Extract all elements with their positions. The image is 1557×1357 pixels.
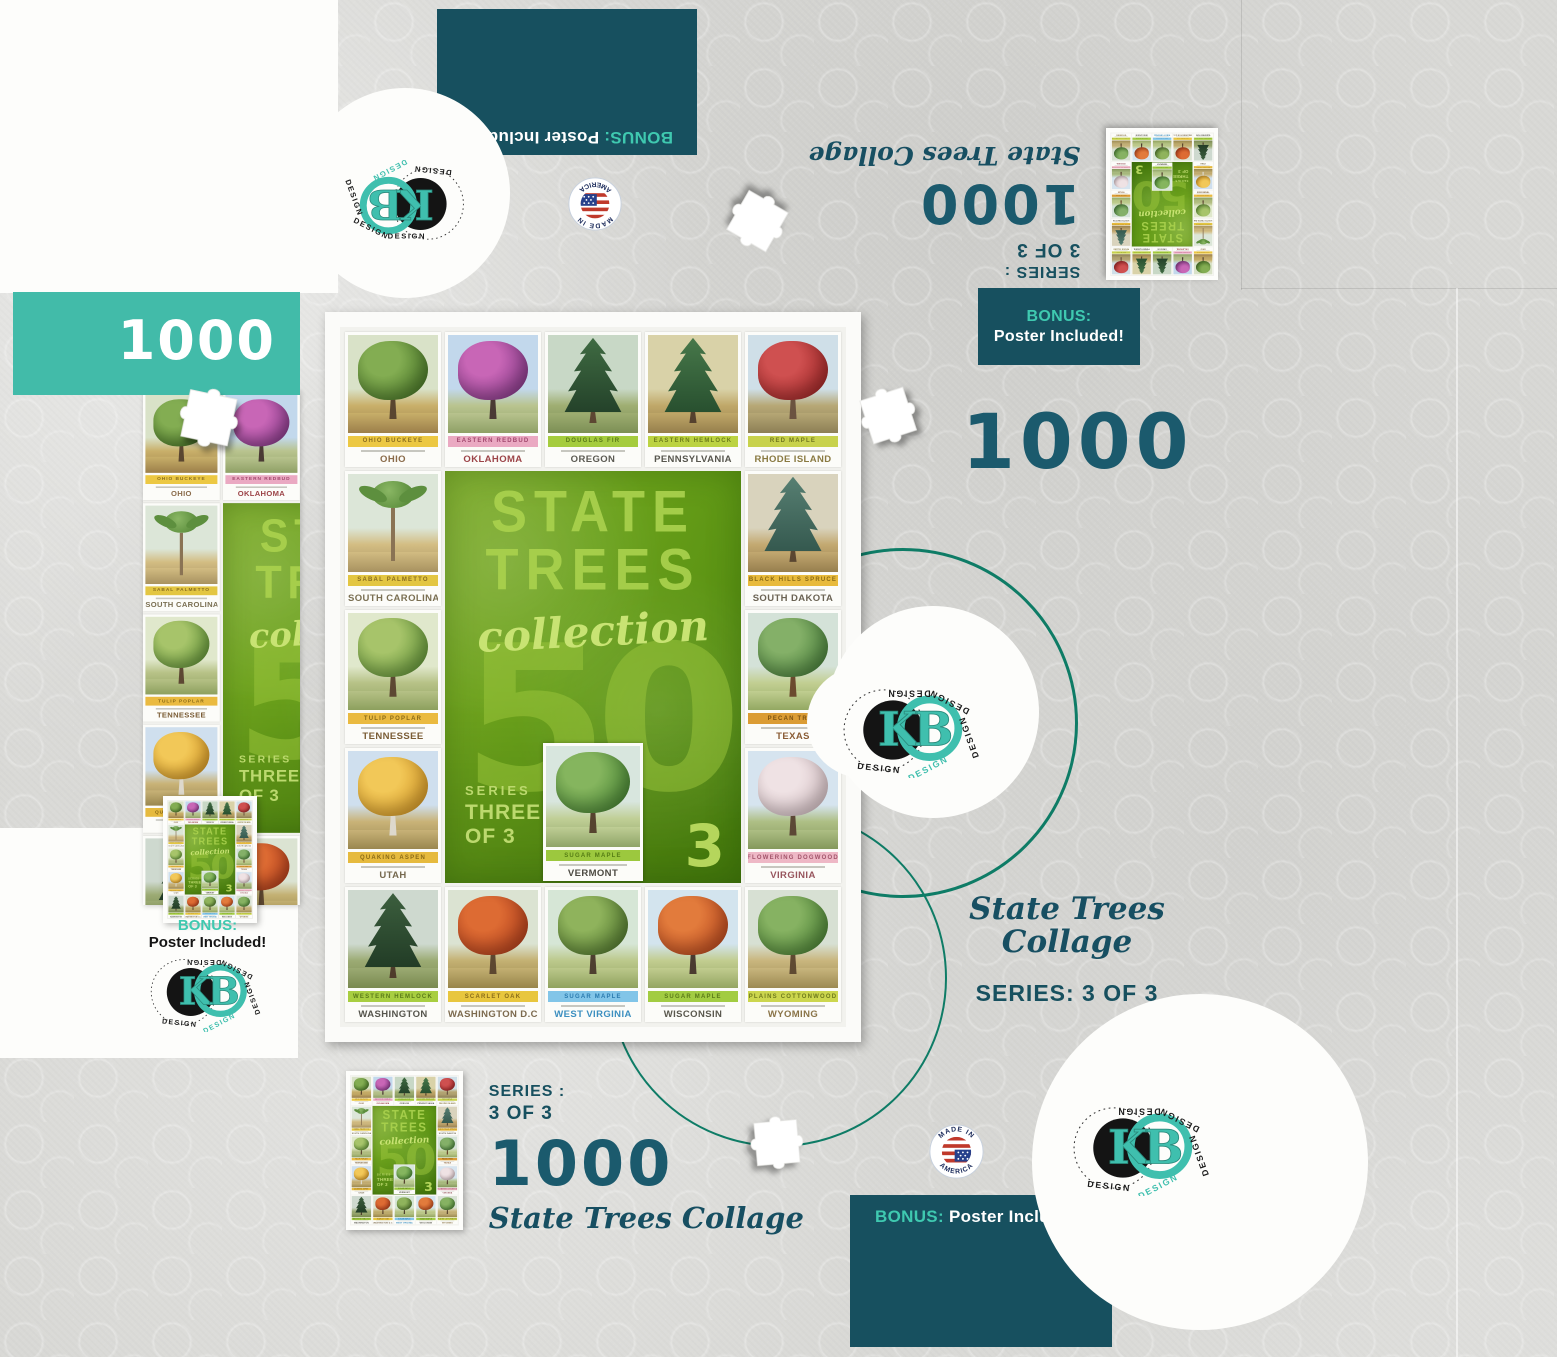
state-tree-card: Pecan TreeTEXAS [437, 1136, 458, 1165]
series-value: 3 OF 3 [1016, 238, 1080, 260]
species-band: Sugar Maple [546, 850, 640, 861]
state-tree-card: Ohio BuckeyeOHIO [351, 1076, 372, 1105]
state-name: WASHINGTON [352, 1222, 371, 1224]
state-name: TENNESSEE [145, 712, 217, 721]
kb-design-logo: KB DESIGN DESIGN DESIGN DESIGN DESIGN [147, 952, 267, 1032]
puzzle-artwork: Ohio BuckeyeOHIOEastern RedbudOKLAHOMADo… [1110, 133, 1214, 277]
state-name: OKLAHOMA [185, 822, 200, 824]
svg-text:KB: KB [179, 969, 239, 1014]
state-name: OHIO [352, 1102, 371, 1104]
tree-illustration [448, 890, 538, 988]
tree-illustration [1112, 140, 1130, 160]
state-name: PENNSYLVANIA [648, 454, 738, 465]
svg-text:DESIGN: DESIGN [162, 1018, 198, 1029]
state-name: VERMONT [202, 892, 218, 894]
tree-illustration [352, 1107, 371, 1128]
tree-illustration [373, 1196, 392, 1217]
state-tree-card: Ohio BuckeyeOHIO [168, 801, 184, 824]
tree-illustration [145, 728, 217, 806]
state-tree-card: Eastern RedbudOKLAHOMA [373, 1076, 394, 1105]
species-band: Flowering Dogwood [748, 852, 838, 863]
caption-line [761, 589, 826, 591]
state-name: OKLAHOMA [1173, 248, 1191, 250]
state-tree-card: Flowering DogwoodVIRGINIA [745, 748, 841, 883]
piece-count: 1000 [489, 1133, 674, 1195]
species-band: Eastern Redbud [373, 1098, 392, 1100]
state-name: RHODE ISLAND [438, 1102, 457, 1104]
tree-illustration [202, 871, 218, 888]
tree-illustration [1194, 169, 1212, 189]
state-tree-card: Douglas FirOREGON [1152, 247, 1172, 275]
state-tree-card: Black Hills SpruceSOUTH DAKOTA [437, 1106, 458, 1135]
species-band: Black Hills Spruce [438, 1128, 457, 1130]
tree-illustration [438, 1166, 457, 1187]
caption-line [155, 597, 207, 599]
state-tree-card: Tulip PoplarTENNESSEE [1193, 190, 1213, 218]
svg-text:DESIGN: DESIGN [1117, 1107, 1161, 1117]
tree-illustration [236, 801, 251, 818]
species-band: Douglas Fir [395, 1098, 414, 1100]
collage-title-line2: Collage [962, 926, 1172, 959]
state-name: SOUTH DAKOTA [438, 1132, 457, 1134]
tree-illustration [202, 896, 217, 913]
puzzle-piece-icon [724, 1094, 822, 1192]
puzzle-thumbnail: Ohio BuckeyeOHIOEastern RedbudOKLAHOMADo… [163, 796, 257, 923]
svg-text:KB: KB [878, 703, 952, 758]
caption-line [361, 589, 426, 591]
state-name: WYOMING [1112, 134, 1130, 136]
made-in-america-graphic: MADE IN AMERICA [929, 1124, 984, 1179]
species-band: Plains Cottonwood [748, 991, 838, 1002]
center-panel-text: 3 [424, 1180, 433, 1192]
species-band: Ohio Buckeye [145, 475, 217, 484]
svg-text:DESIGN: DESIGN [857, 761, 902, 776]
tree-illustration [219, 896, 234, 913]
state-tree-card: Flowering DogwoodVIRGINIA [236, 872, 252, 895]
center-title-panel: 50STATETREEScollectionSERIESTHREEOF 33Su… [223, 503, 300, 833]
species-band: Tulip Poplar [352, 1158, 371, 1160]
center-panel-text: 3 [1135, 164, 1143, 176]
species-band: Sugar Maple [394, 1187, 414, 1189]
tree-illustration [438, 1136, 457, 1157]
species-band: Sugar Maple [416, 1218, 435, 1220]
white-panel-top-left [0, 0, 338, 293]
collage-title-line1: State Trees [962, 893, 1172, 926]
state-name: OREGON [395, 1102, 414, 1104]
tree-illustration [748, 751, 838, 849]
state-tree-card: Eastern HemlockPENNSYLVANIA [645, 332, 741, 467]
state-tree-card: Douglas FirOREGON [394, 1076, 415, 1105]
tree-illustration [448, 335, 538, 433]
state-name: SOUTH DAKOTA [748, 593, 838, 604]
state-name: OHIO [168, 822, 183, 824]
state-name: UTAH [168, 892, 183, 894]
svg-text:KB: KB [1108, 1121, 1182, 1176]
tree-illustration [748, 890, 838, 988]
tree-illustration [145, 505, 217, 583]
state-name: WEST VIRGINIA [1153, 134, 1171, 136]
box-front-artwork: Ohio BuckeyeOHIOEastern RedbudOKLAHOMADo… [325, 312, 861, 1042]
caption-line [361, 866, 426, 868]
state-name: WASHINGTON D.C. [373, 1222, 392, 1224]
fold-seam [1456, 288, 1458, 1357]
state-tree-card: Sugar MapleVERMONT [394, 1164, 416, 1194]
tree-illustration [1132, 254, 1150, 274]
state-name: TENNESSEE [352, 1162, 371, 1164]
state-name: WASHINGTON [1194, 134, 1212, 136]
center-title-panel: 50STATETREEScollectionSERIESTHREEOF 33Su… [445, 471, 741, 883]
puzzle-piece-graphic [149, 363, 268, 482]
piece-count: 1000 [118, 314, 276, 368]
state-tree-card: Sugar MapleVERMONT [1152, 162, 1173, 190]
state-name: OREGON [548, 454, 638, 465]
tree-illustration [546, 746, 640, 847]
species-band: Ohio Buckeye [348, 436, 438, 447]
state-tree-card: Eastern RedbudOKLAHOMA [1173, 247, 1193, 275]
kb-design-logo: KB DESIGN DESIGN DESIGN DESIGN DESIGN [338, 160, 468, 248]
species-band: Douglas Fir [548, 436, 638, 447]
state-tree-card: Sugar MapleWISCONSIN [1132, 134, 1152, 162]
state-name: UTAH [348, 870, 438, 881]
tree-illustration [748, 335, 838, 433]
tree-illustration [348, 335, 438, 433]
species-band: Sabal Palmetto [352, 1128, 371, 1130]
state-name: TENNESSEE [348, 731, 438, 742]
tree-illustration [1194, 197, 1212, 217]
state-name: PENNSYLVANIA [219, 822, 234, 824]
species-band: Sabal Palmetto [145, 586, 217, 595]
series-value: 3 OF 3 [489, 1103, 553, 1125]
state-name: VIRGINIA [236, 892, 251, 894]
state-tree-card: Western HemlockWASHINGTON [351, 1195, 372, 1224]
state-name: VERMONT [1153, 163, 1172, 165]
fold-seam [1241, 0, 1242, 290]
caption-line [361, 727, 426, 729]
tree-illustration [219, 801, 234, 818]
side-bonus-text: BONUS: Poster Included! [100, 917, 315, 951]
caption-line [661, 450, 726, 452]
caption-line [561, 1005, 626, 1007]
species-band: Flowering Dogwood [438, 1188, 457, 1190]
puzzle-piece-graphic [724, 1094, 822, 1192]
made-in-america-graphic: MADE IN AMERICA [568, 177, 622, 231]
collage-title-script: State Trees Collage [489, 1201, 804, 1235]
tree-illustration [352, 1196, 371, 1217]
tree-illustration [1173, 140, 1191, 160]
state-tree-card: Sugar MapleWISCONSIN [645, 887, 741, 1022]
caption-line [361, 1005, 426, 1007]
caption-line [561, 450, 626, 452]
center-panel-text: STATE [445, 485, 741, 540]
tree-illustration [438, 1196, 457, 1217]
tree-illustration [548, 335, 638, 433]
tree-illustration [1112, 254, 1130, 274]
state-name: OHIO [348, 454, 438, 465]
puzzle-artwork: Ohio BuckeyeOHIOEastern RedbudOKLAHOMADo… [340, 327, 846, 1027]
state-name: SOUTH DAKOTA [236, 845, 251, 847]
tree-illustration [1112, 226, 1130, 246]
state-tree-card: Quaking AspenUTAH [345, 748, 441, 883]
svg-text:DESIGN: DESIGN [244, 980, 263, 1016]
state-tree-card: Pecan TreeTEXAS [236, 848, 252, 871]
state-tree-card: Quaking AspenUTAH [168, 872, 184, 895]
bonus-box-top-right: BONUS: Poster Included! [978, 288, 1140, 365]
caption-line [461, 450, 526, 452]
series-label: SERIES : [489, 1083, 565, 1101]
tree-illustration [348, 890, 438, 988]
state-name: WISCONSIN [416, 1222, 435, 1224]
tree-illustration [1112, 169, 1130, 189]
state-name: WISCONSIN [1132, 134, 1150, 136]
collage-title-script: State Trees Collage [809, 141, 1081, 170]
species-band: Western Hemlock [352, 1218, 371, 1220]
tree-illustration [394, 1165, 414, 1187]
caption-line [761, 450, 826, 452]
svg-text:DESIGN: DESIGN [413, 164, 452, 177]
tree-illustration [373, 1077, 392, 1098]
species-band: Quaking Aspen [352, 1188, 371, 1190]
center-title-panel: 50STATETREEScollectionSERIESTHREEOF 33Su… [373, 1106, 437, 1195]
state-tree-card: Flowering DogwoodVIRGINIA [1111, 162, 1131, 190]
center-panel-text: STATE [373, 1109, 437, 1121]
series-label: SERIES : [1004, 262, 1080, 280]
right-title-block: State Trees Collage SERIES: 3 OF 3 [962, 893, 1172, 1007]
puzzle-piece-icon [149, 363, 268, 482]
state-name: OHIO [145, 489, 217, 498]
bonus-label: BONUS: [1027, 308, 1092, 325]
state-tree-card: Scarlet OakWASHINGTON D.C. [185, 895, 201, 918]
tree-illustration [185, 896, 200, 913]
tree-illustration [185, 801, 200, 818]
state-tree-card: Scarlet OakWASHINGTON D.C. [1173, 134, 1193, 162]
kb-logo-graphic: KB DESIGN DESIGN DESIGN DESIGN DESIGN [1068, 1100, 1218, 1196]
species-band: Scarlet Oak [373, 1218, 392, 1220]
puzzle-thumbnail: Ohio BuckeyeOHIOEastern RedbudOKLAHOMADo… [346, 1071, 463, 1230]
tree-illustration [438, 1107, 457, 1128]
state-name: VIRGINIA [1112, 162, 1130, 164]
state-name: RHODE ISLAND [236, 822, 251, 824]
state-name: WASHINGTON D.C. [1173, 134, 1191, 136]
state-tree-card: Eastern HemlockPENNSYLVANIA [416, 1076, 437, 1105]
bonus-value: Poster Included! [100, 934, 315, 951]
state-name: VERMONT [394, 1191, 414, 1193]
state-tree-card: Plains CottonwoodWYOMING [437, 1195, 458, 1224]
tree-illustration [145, 616, 217, 694]
tree-illustration [352, 1077, 371, 1098]
state-name: TENNESSEE [168, 869, 183, 871]
state-tree-card: Sabal PalmettoSOUTH CAROLINA [345, 471, 441, 606]
tree-illustration [168, 849, 183, 866]
tree-illustration [236, 849, 251, 866]
tree-illustration [236, 825, 251, 842]
state-tree-card: Sugar MapleWEST VIRGINIA [1152, 134, 1172, 162]
caption-line [559, 864, 627, 866]
tree-illustration [1153, 140, 1171, 160]
tree-illustration [1153, 169, 1172, 190]
puzzle-box-packaging: BONUS: Poster Included! KB DESIGN DESIGN… [0, 0, 1557, 1357]
state-name: WASHINGTON [348, 1009, 438, 1020]
species-band: Eastern Hemlock [416, 1098, 435, 1100]
bonus-label: BONUS: [100, 917, 315, 934]
fold-seam [1241, 288, 1557, 289]
state-name: WASHINGTON D.C. [448, 1009, 538, 1020]
state-tree-card: Sugar MapleWEST VIRGINIA [545, 887, 641, 1022]
state-name: OKLAHOMA [225, 489, 297, 498]
tree-illustration [168, 825, 183, 842]
side-panel-count-box: 1000 [13, 292, 300, 395]
state-tree-card: Plains CottonwoodWYOMING [745, 887, 841, 1022]
state-name: SOUTH DAKOTA [1112, 219, 1130, 221]
state-name: VERMONT [546, 868, 640, 879]
state-tree-card: Douglas FirOREGON [202, 801, 218, 824]
series-inline: SERIES: 3 OF 3 [962, 980, 1172, 1007]
state-tree-card: Eastern RedbudOKLAHOMA [185, 801, 201, 824]
caption-line [235, 486, 287, 488]
tree-illustration [416, 1077, 435, 1098]
center-panel-text: 3 [685, 817, 725, 875]
center-panel-text: STATE [223, 514, 300, 558]
tree-illustration [1194, 254, 1212, 274]
tree-illustration [168, 872, 183, 889]
state-name: WISCONSIN [648, 1009, 738, 1020]
state-name: WYOMING [748, 1009, 838, 1020]
bonus-value: Poster Included! [994, 328, 1124, 345]
tree-illustration [168, 896, 183, 913]
state-name: OKLAHOMA [373, 1102, 392, 1104]
made-in-america-badge: MADE IN AMERICA [568, 177, 622, 231]
svg-text:DESIGN: DESIGN [186, 958, 222, 965]
state-name: PENNSYLVANIA [1132, 248, 1150, 250]
state-name: WEST VIRGINIA [395, 1222, 414, 1224]
species-band: Western Hemlock [348, 991, 438, 1002]
tree-illustration [1173, 254, 1191, 274]
tree-illustration [648, 890, 738, 988]
center-panel-text: TREES [185, 837, 235, 846]
state-tree-card: Sabal PalmettoSOUTH CAROLINA [351, 1106, 372, 1135]
state-tree-card: Red MapleRHODE ISLAND [1111, 247, 1131, 275]
species-band: Tulip Poplar [145, 697, 217, 706]
state-tree-card: Red MapleRHODE ISLAND [745, 332, 841, 467]
state-name: WEST VIRGINIA [548, 1009, 638, 1020]
state-name: SOUTH CAROLINA [352, 1132, 371, 1134]
tree-illustration [648, 335, 738, 433]
tree-illustration [1194, 226, 1212, 246]
state-tree-card: Eastern HemlockPENNSYLVANIA [1132, 247, 1152, 275]
state-tree-card: Sugar MapleWISCONSIN [416, 1195, 437, 1224]
caption-line [361, 450, 426, 452]
species-band: Black Hills Spruce [748, 575, 838, 586]
puzzle-artwork: Ohio BuckeyeOHIOEastern RedbudOKLAHOMADo… [167, 800, 253, 919]
state-tree-card: Sugar MapleWEST VIRGINIA [394, 1195, 415, 1224]
state-name: UTAH [352, 1192, 371, 1194]
state-tree-card: Plains CottonwoodWYOMING [236, 895, 252, 918]
state-tree-card: Tulip PoplarTENNESSEE [168, 848, 184, 871]
tree-illustration [236, 896, 251, 913]
puzzle-thumbnail: Ohio BuckeyeOHIOEastern RedbudOKLAHOMADo… [1106, 129, 1218, 281]
state-tree-card: Ohio BuckeyeOHIO [345, 332, 441, 467]
state-tree-card: Black Hills SpruceSOUTH DAKOTA [745, 471, 841, 606]
state-name: TEXAS [1112, 191, 1130, 193]
caption-line [661, 1005, 726, 1007]
state-tree-card: Eastern RedbudOKLAHOMA [445, 332, 541, 467]
tree-illustration [1132, 140, 1150, 160]
state-tree-card: Scarlet OakWASHINGTON D.C. [445, 887, 541, 1022]
species-band: Plains Cottonwood [438, 1218, 457, 1220]
svg-text:DESIGN: DESIGN [388, 231, 426, 240]
state-tree-card: Sabal PalmettoSOUTH CAROLINA [143, 503, 220, 611]
state-tree-card: Western HemlockWASHINGTON [1193, 134, 1213, 162]
tree-illustration [395, 1077, 414, 1098]
tree-illustration [548, 890, 638, 988]
state-name: OKLAHOMA [448, 454, 538, 465]
center-panel-text: SERIESTHREEOF 3 [465, 783, 541, 849]
state-tree-card: Sugar MapleWISCONSIN [219, 895, 235, 918]
state-tree-card: Quaking AspenUTAH [1193, 162, 1213, 190]
state-name: OREGON [1153, 248, 1171, 250]
state-name: TEXAS [438, 1162, 457, 1164]
center-panel-text: TREES [373, 1121, 437, 1133]
state-tree-card: Douglas FirOREGON [545, 332, 641, 467]
state-name: WYOMING [438, 1222, 457, 1224]
kb-design-logo: KB DESIGN DESIGN DESIGN DESIGN DESIGN [1068, 1100, 1218, 1196]
species-band: Ohio Buckeye [352, 1098, 371, 1100]
center-panel-text: TREES [223, 561, 300, 605]
state-tree-card: Red MapleRHODE ISLAND [437, 1076, 458, 1105]
tree-illustration [352, 1136, 371, 1157]
state-tree-card: Sabal PalmettoSOUTH CAROLINA [1193, 219, 1213, 247]
state-tree-card: Black Hills SpruceSOUTH DAKOTA [236, 824, 252, 847]
piece-count: 1000 [918, 176, 1080, 230]
kb-logo-graphic: KB DESIGN DESIGN DESIGN DESIGN DESIGN [838, 682, 988, 778]
kb-logo-graphic: KB DESIGN DESIGN DESIGN DESIGN DESIGN [147, 952, 267, 1032]
state-name: OHIO [1194, 248, 1212, 250]
tree-illustration [168, 801, 183, 818]
state-tree-card: Pecan TreeTEXAS [1111, 190, 1131, 218]
tree-illustration [1112, 197, 1130, 217]
state-tree-card: Western HemlockWASHINGTON [345, 887, 441, 1022]
center-panel-text: TREES [445, 543, 741, 598]
center-title-panel: 50STATETREEScollectionSERIESTHREEOF 33Su… [185, 824, 235, 894]
state-tree-card: Flowering DogwoodVIRGINIA [437, 1166, 458, 1195]
state-name: TEXAS [236, 869, 251, 871]
species-band: Quaking Aspen [348, 852, 438, 863]
state-tree-card: Quaking AspenUTAH [351, 1166, 372, 1195]
kb-design-logo: KB DESIGN DESIGN DESIGN DESIGN DESIGN [838, 682, 988, 778]
state-tree-card: Tulip PoplarTENNESSEE [351, 1136, 372, 1165]
state-tree-card: Black Hills SpruceSOUTH DAKOTA [1111, 219, 1131, 247]
species-band: Red Maple [438, 1098, 457, 1100]
tree-illustration [348, 474, 438, 572]
tree-illustration [416, 1196, 435, 1217]
species-band: Scarlet Oak [448, 991, 538, 1002]
tree-illustration [236, 872, 251, 889]
tree-illustration [438, 1077, 457, 1098]
caption-line [155, 708, 207, 710]
species-band: Tulip Poplar [348, 713, 438, 724]
tree-illustration [395, 1196, 414, 1217]
tree-illustration [202, 801, 217, 818]
state-tree-card: Sabal PalmettoSOUTH CAROLINA [168, 824, 184, 847]
state-tree-card: Tulip PoplarTENNESSEE [143, 614, 220, 722]
state-tree-card: Western HemlockWASHINGTON [168, 895, 184, 918]
caption-line [155, 486, 207, 488]
state-tree-card: Scarlet OakWASHINGTON D.C. [373, 1195, 394, 1224]
tree-illustration [348, 751, 438, 849]
state-name: SOUTH CAROLINA [348, 593, 438, 604]
species-band: Sugar Maple [548, 991, 638, 1002]
center-panel-text: 3 [226, 883, 233, 893]
state-tree-card: Eastern HemlockPENNSYLVANIA [219, 801, 235, 824]
